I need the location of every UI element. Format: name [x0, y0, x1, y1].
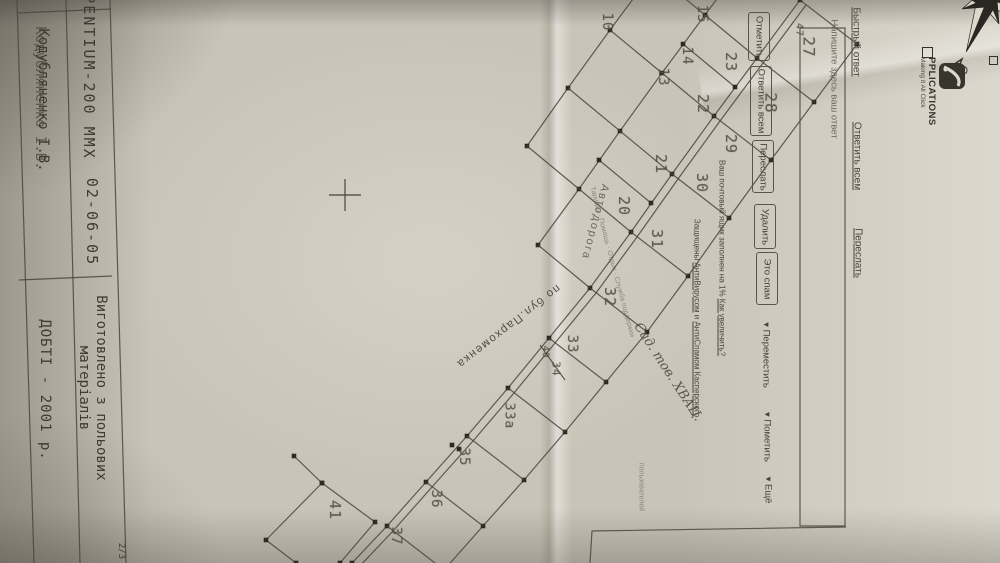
av-prefix: Защищены: [693, 219, 702, 263]
plot-number-21: 21: [652, 154, 670, 174]
plot-number-29: 29: [722, 134, 740, 154]
antivirus-note: Защищены АнтиВирусом и АнтиСпамом Каспер…: [693, 219, 702, 417]
plot-number-33: 33: [564, 335, 580, 354]
plot-number-13: 13: [655, 68, 671, 87]
plot-number-27: 27: [800, 36, 819, 57]
plot-number-14: 14: [679, 47, 695, 66]
plot-number-20: 20: [615, 196, 633, 216]
dropdown-0: ▾ Переместить: [761, 322, 772, 388]
quick-link-1: Ответить всем: [852, 122, 863, 190]
reply-placeholder: Напишите здесь ваш ответ: [829, 19, 840, 138]
compass-tick-east: [989, 56, 998, 65]
plot-number-30: 30: [693, 173, 711, 193]
logo-tagline: Making it All Click: [919, 57, 926, 143]
toolbar-button-label: Переслать: [758, 143, 769, 190]
toolbar-button-label: Удалить: [760, 208, 771, 244]
plot-number-34: 34: [550, 361, 563, 376]
plot-number-22: 22: [694, 94, 712, 114]
plot-number-31: 31: [648, 229, 666, 249]
toolbar-button-label: Ответить всем: [756, 69, 767, 134]
plot-number-36: 36: [428, 490, 444, 509]
photographed-document: PENTIUM-200 MMX 02-06-05 Кодубляненко І.…: [0, 0, 1000, 563]
toolbar-button-3: Удалить: [754, 204, 776, 249]
compass-rose: [0, 0, 1000, 563]
quota-increase-link: Как увеличить?: [718, 299, 727, 356]
mailbox-quota-text: Ваш почтовый ящик заполнен на 1% Как уве…: [718, 160, 727, 356]
dropdown-2: ▾ Ещё: [763, 477, 774, 504]
vendor-logo: PPLICATIONS Making it All Click: [893, 57, 965, 143]
quick-link-0: Быстрый ответ: [851, 7, 862, 76]
av-mid: и: [693, 313, 702, 322]
av-antivirus-link: АнтиВирусом: [693, 263, 702, 313]
plot-number-15: 15: [694, 5, 710, 24]
plot-number-37: 37: [388, 527, 404, 546]
plot-number-32: 32: [601, 287, 619, 307]
logo-name: PPLICATIONS: [926, 57, 937, 143]
plot-number-10: 10: [599, 13, 615, 32]
logo-mark: [939, 63, 965, 89]
toolbar-button-label: Отметить: [754, 15, 765, 57]
quick-link-2: Переслать: [853, 228, 864, 278]
toolbar-button-1: Ответить всем: [750, 66, 772, 136]
plot-number-41: 41: [326, 500, 344, 520]
plot-number-33а: 33а: [502, 403, 517, 429]
toolbar-button-label: Это спам: [762, 258, 773, 299]
dropdown-1: ▾ Пометить: [762, 412, 773, 462]
quota-prefix: Ваш почтовый ящик заполнен на 1%: [718, 160, 727, 299]
plot-number-23: 23: [722, 52, 740, 72]
footer-links-2: пользователей: [638, 463, 645, 511]
plot-number-40: 40: [540, 346, 550, 359]
toolbar-button-2: Переслать: [752, 140, 774, 193]
plot-number-47: 47: [794, 23, 805, 37]
plot-number-35: 35: [456, 448, 472, 467]
toolbar-button-0: Отметить: [748, 12, 770, 61]
toolbar-button-4: Это спам: [756, 252, 778, 305]
